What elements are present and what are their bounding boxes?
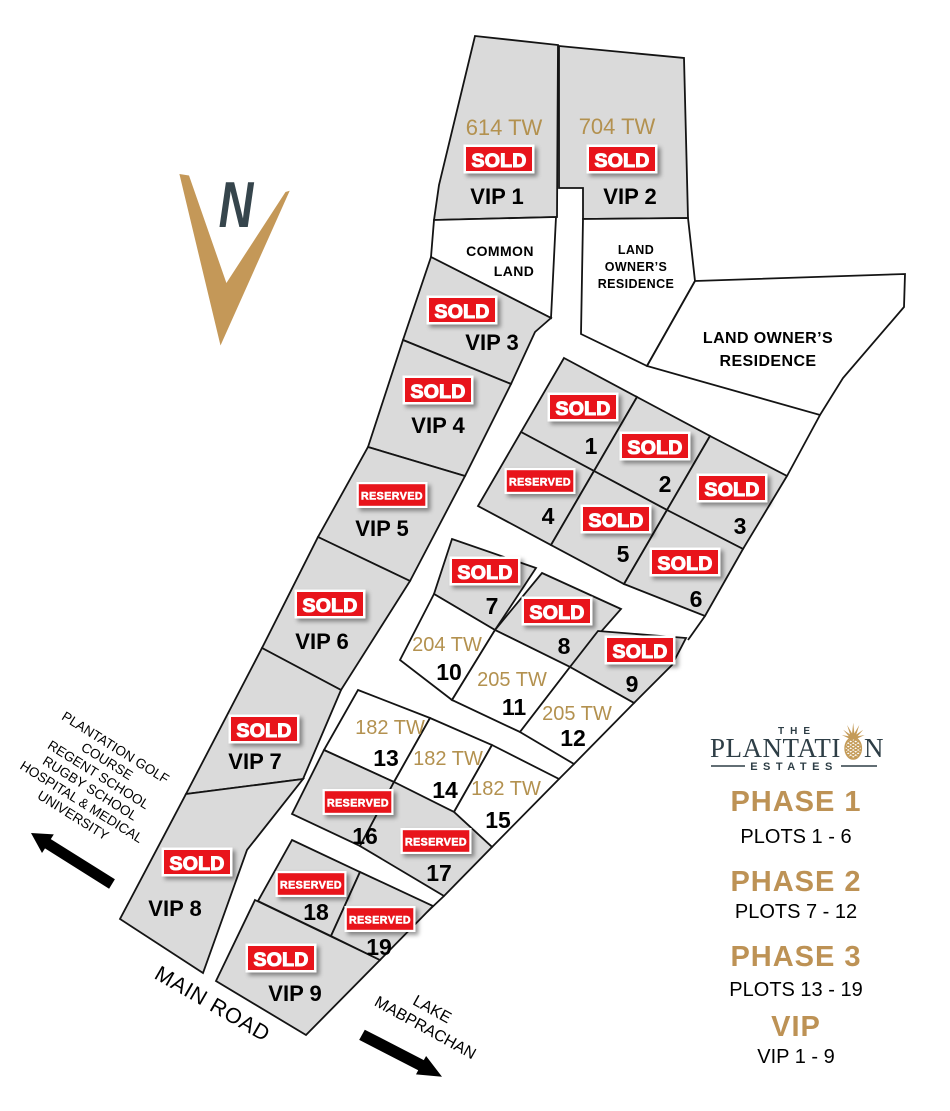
svg-text:13: 13 — [373, 745, 399, 771]
svg-text:19: 19 — [366, 934, 392, 960]
svg-text:LAND OWNER’S: LAND OWNER’S — [703, 330, 833, 347]
svg-text:3: 3 — [734, 513, 747, 539]
svg-text:PHASE 1: PHASE 1 — [730, 786, 861, 818]
svg-text:SOLD: SOLD — [435, 301, 490, 323]
svg-text:SOLD: SOLD — [411, 381, 466, 403]
svg-text:17: 17 — [426, 860, 452, 886]
svg-text:15: 15 — [485, 807, 511, 833]
svg-text:SOLD: SOLD — [254, 949, 309, 971]
svg-text:182 TW: 182 TW — [413, 748, 483, 770]
svg-text:RESERVED: RESERVED — [327, 798, 389, 810]
svg-text:SOLD: SOLD — [170, 853, 225, 875]
svg-text:OWNER’S: OWNER’S — [605, 260, 668, 274]
svg-text:SOLD: SOLD — [303, 595, 358, 617]
svg-text:205 TW: 205 TW — [477, 669, 547, 691]
svg-text:182 TW: 182 TW — [471, 778, 541, 800]
svg-text:SOLD: SOLD — [628, 437, 683, 459]
svg-text:LAND: LAND — [618, 243, 654, 257]
svg-text:205 TW: 205 TW — [542, 703, 612, 725]
svg-text:SOLD: SOLD — [530, 602, 585, 624]
svg-text:204 TW: 204 TW — [412, 634, 482, 656]
svg-text:VIP 9: VIP 9 — [268, 981, 321, 1006]
svg-text:VIP 1: VIP 1 — [470, 184, 523, 209]
svg-text:VIP 5: VIP 5 — [355, 516, 408, 541]
svg-text:RESERVED: RESERVED — [280, 880, 342, 892]
svg-text:14: 14 — [432, 777, 458, 803]
svg-text:9: 9 — [626, 671, 639, 697]
svg-text:RESIDENCE: RESIDENCE — [720, 353, 817, 370]
svg-text:RESERVED: RESERVED — [509, 477, 571, 489]
svg-text:VIP 7: VIP 7 — [228, 749, 281, 774]
svg-text:VIP 3: VIP 3 — [465, 330, 518, 355]
svg-text:VIP: VIP — [771, 1011, 821, 1043]
svg-text:7: 7 — [486, 593, 499, 619]
svg-text:18: 18 — [303, 899, 329, 925]
svg-text:RESERVED: RESERVED — [349, 915, 411, 927]
svg-text:4: 4 — [542, 503, 555, 529]
svg-text:11: 11 — [502, 694, 527, 720]
svg-text:SOLD: SOLD — [658, 553, 713, 575]
svg-text:RESERVED: RESERVED — [361, 491, 423, 503]
svg-text:SOLD: SOLD — [237, 720, 292, 742]
svg-text:VIP 8: VIP 8 — [148, 896, 201, 921]
svg-text:6: 6 — [690, 586, 703, 612]
svg-text:RESIDENCE: RESIDENCE — [598, 277, 675, 291]
svg-text:PLOTS 7 - 12: PLOTS 7 - 12 — [735, 901, 857, 923]
svg-text:1: 1 — [585, 433, 598, 459]
svg-text:PHASE 3: PHASE 3 — [730, 941, 861, 973]
svg-text:VIP 2: VIP 2 — [603, 184, 656, 209]
svg-text:SOLD: SOLD — [556, 398, 611, 420]
svg-text:N: N — [219, 169, 255, 242]
svg-text:VIP 6: VIP 6 — [295, 629, 348, 654]
svg-text:SOLD: SOLD — [613, 641, 668, 663]
svg-text:16: 16 — [352, 823, 378, 849]
svg-text:ESTATES: ESTATES — [750, 761, 838, 773]
svg-text:PLANTATI: PLANTATI — [710, 733, 841, 763]
svg-text:8: 8 — [558, 633, 571, 659]
svg-text:704 TW: 704 TW — [579, 114, 656, 139]
svg-text:10: 10 — [436, 659, 462, 685]
svg-text:N: N — [864, 733, 884, 763]
svg-text:5: 5 — [617, 541, 630, 567]
svg-text:VIP 4: VIP 4 — [411, 413, 465, 438]
svg-text:PHASE 2: PHASE 2 — [730, 866, 861, 898]
svg-text:SOLD: SOLD — [589, 510, 644, 532]
svg-text:12: 12 — [560, 725, 586, 751]
svg-text:SOLD: SOLD — [595, 150, 650, 172]
svg-text:SOLD: SOLD — [705, 479, 760, 501]
svg-text:VIP 1 - 9: VIP 1 - 9 — [757, 1046, 834, 1068]
svg-text:RESERVED: RESERVED — [405, 837, 467, 849]
svg-text:614 TW: 614 TW — [466, 115, 543, 140]
svg-text:COMMON: COMMON — [466, 243, 534, 259]
svg-text:182 TW: 182 TW — [355, 717, 425, 739]
svg-text:LAND: LAND — [494, 263, 534, 279]
svg-text:PLOTS 13 - 19: PLOTS 13 - 19 — [729, 979, 862, 1001]
svg-text:2: 2 — [659, 471, 672, 497]
svg-text:SOLD: SOLD — [472, 150, 527, 172]
svg-text:SOLD: SOLD — [458, 562, 513, 584]
svg-text:PLOTS 1 - 6: PLOTS 1 - 6 — [740, 826, 851, 848]
